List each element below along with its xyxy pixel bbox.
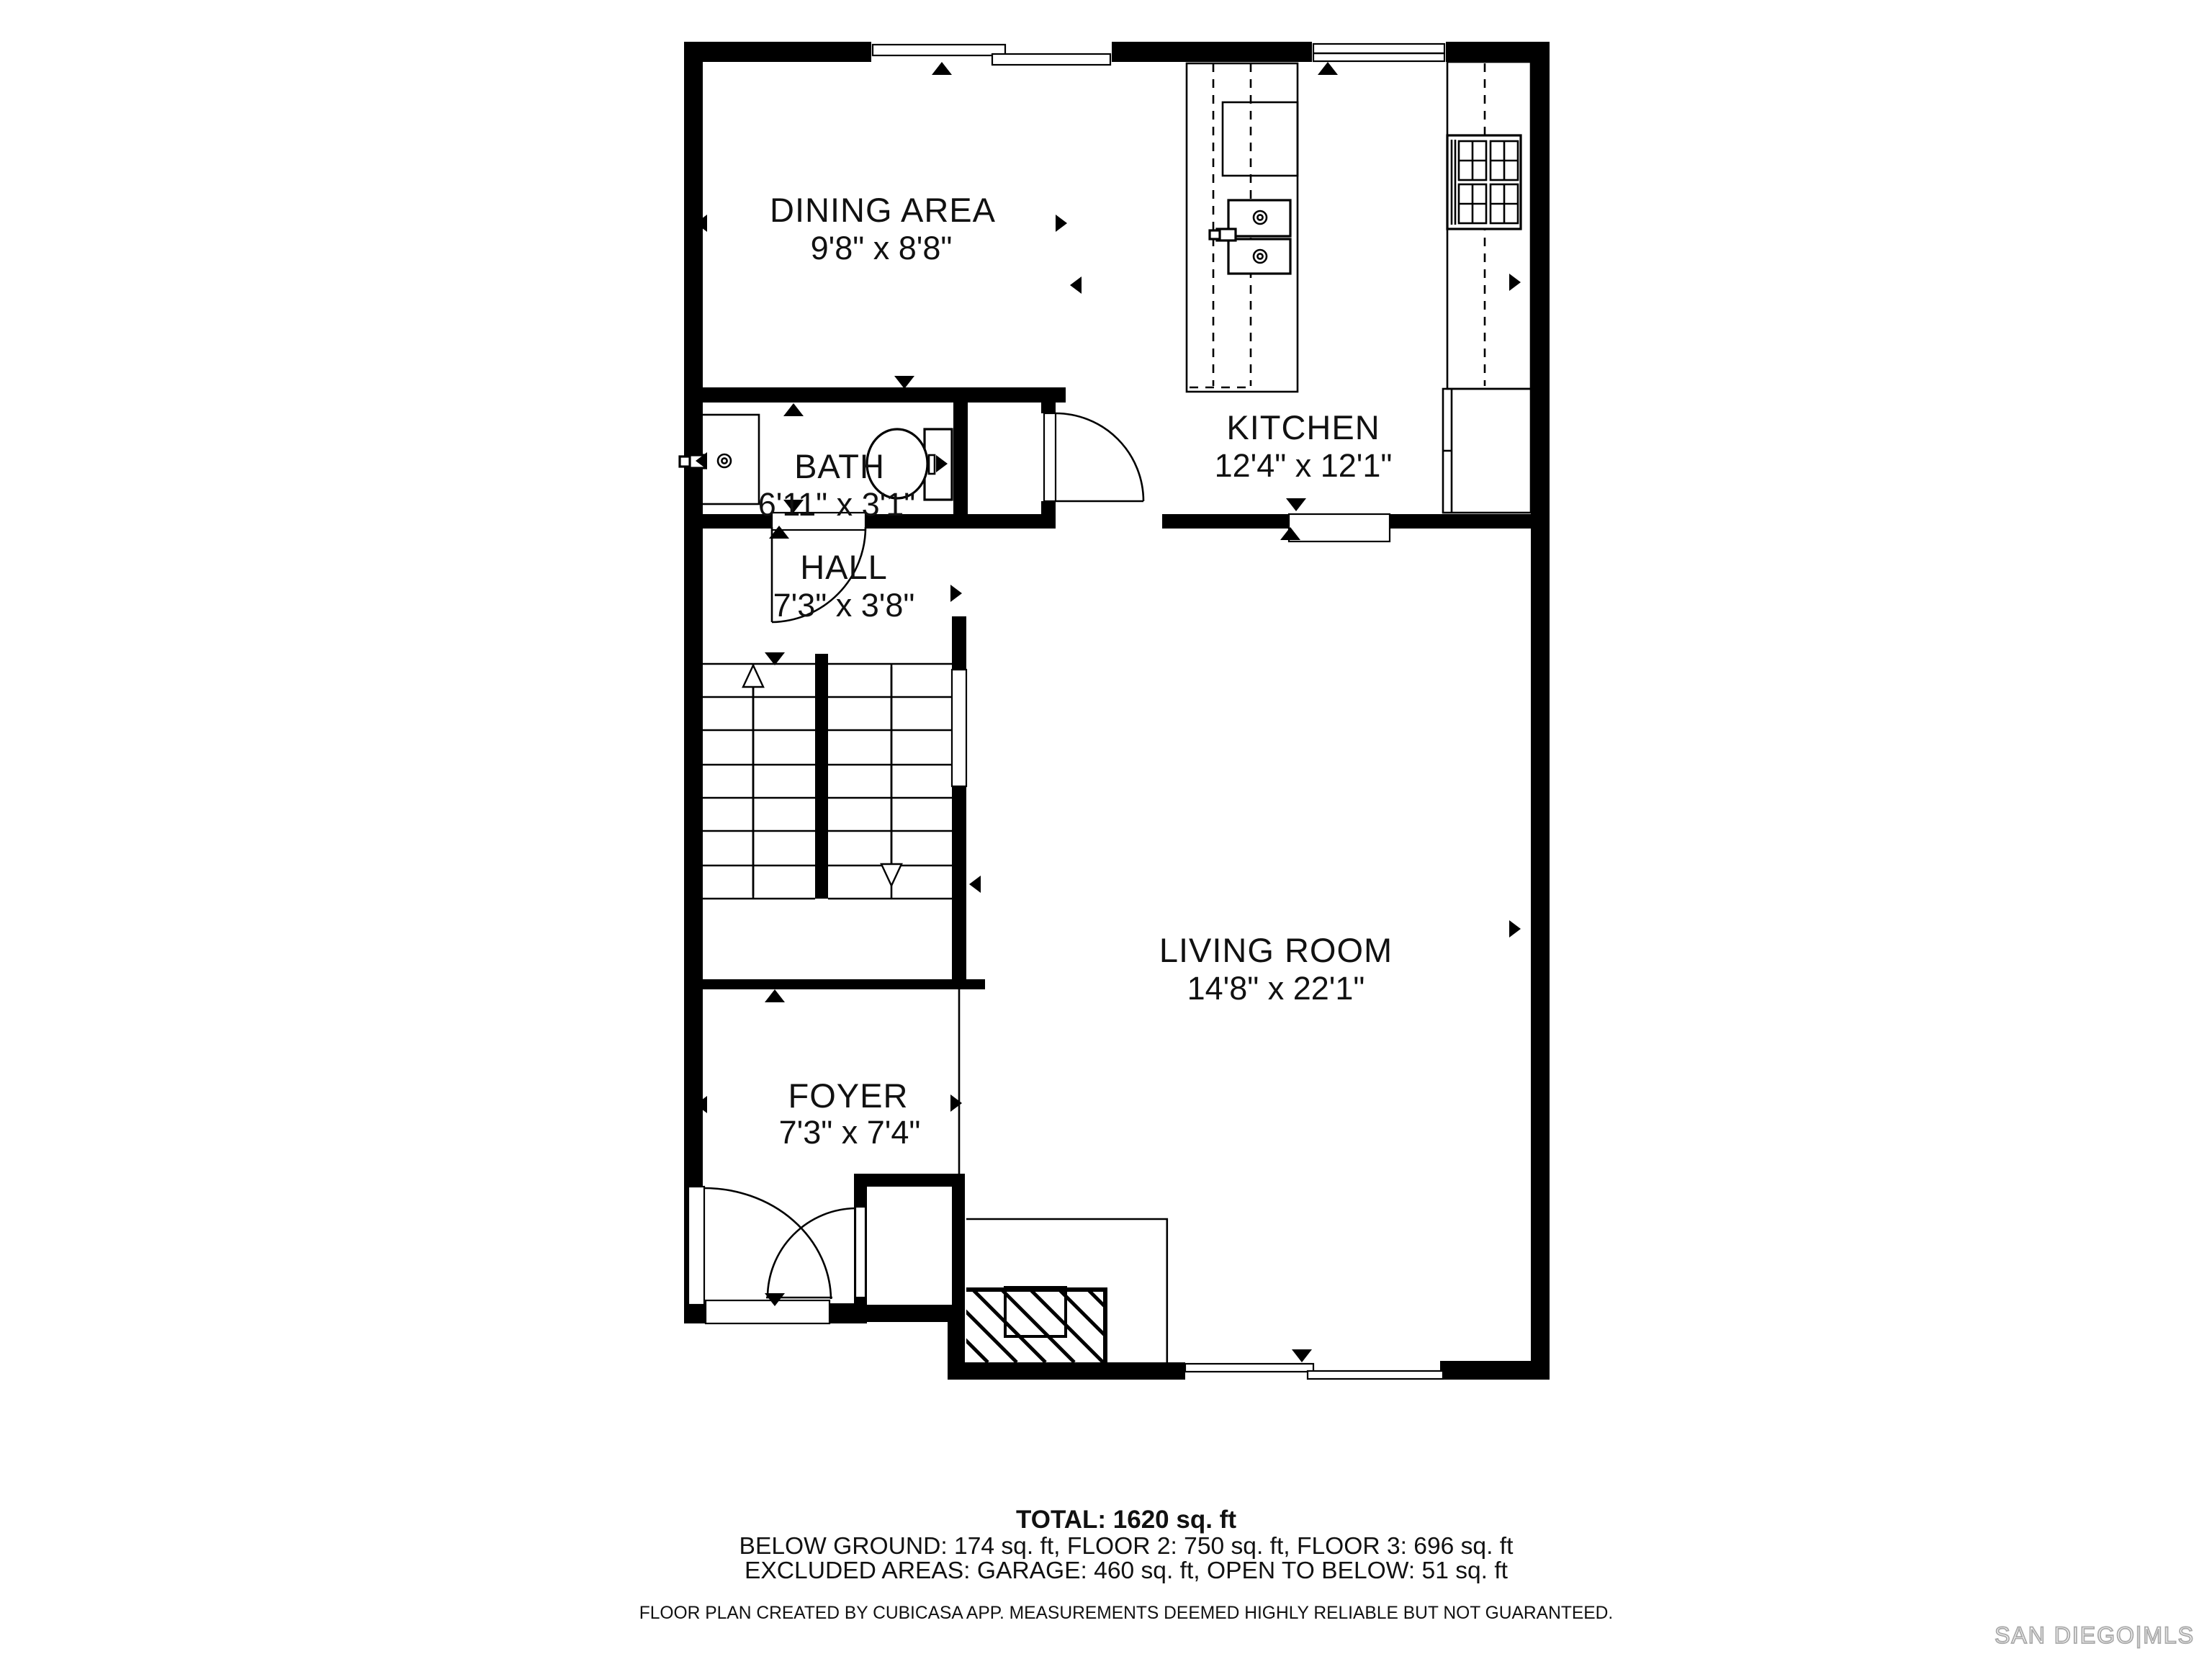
dining-area-label: DINING AREA: [770, 191, 996, 229]
extent-arrow-right-icon: [950, 585, 962, 602]
extent-arrow-up-icon: [783, 403, 804, 416]
extent-arrow-up-icon: [1318, 62, 1338, 75]
summary-block: TOTAL: 1620 sq. ft BELOW GROUND: 174 sq.…: [639, 1506, 1614, 1623]
stove-icon: [1447, 135, 1521, 229]
entry-door-icon: [688, 1187, 831, 1305]
floor-areas-text: BELOW GROUND: 174 sq. ft, FLOOR 2: 750 s…: [739, 1533, 1514, 1560]
foyer-label: FOYER: [788, 1076, 909, 1115]
floor-plan: DINING AREA 9'8" x 8'8" KITCHEN 12'4" x …: [0, 0, 2212, 1659]
extent-arrow-down-icon: [894, 376, 914, 389]
total-area-text: TOTAL: 1620 sq. ft: [1016, 1506, 1236, 1534]
window-top-left-icon: [873, 45, 1110, 65]
refrigerator-icon: [1443, 389, 1531, 513]
disclaimer-text: FLOOR PLAN CREATED BY CUBICASA APP. MEAS…: [639, 1604, 1614, 1623]
kitchen-sink-icon: [1210, 200, 1290, 274]
foyer-dims: 7'3" x 7'4": [779, 1114, 921, 1151]
entry-threshold: [706, 1300, 829, 1323]
pantry-door-icon: [1044, 413, 1143, 501]
hall-dims: 7'3" x 3'8": [773, 587, 915, 624]
stairs-down-arrow-icon: [881, 667, 902, 886]
window-bottom-icon: [1185, 1364, 1443, 1379]
staircase: [693, 664, 966, 979]
interior-walls: [684, 387, 1531, 1380]
extent-arrow-left-icon: [969, 876, 981, 893]
extent-arrow-right-icon: [1056, 215, 1067, 232]
extent-arrow-down-icon: [1286, 498, 1306, 511]
open-to-below-hatch-icon: [884, 1287, 1161, 1362]
dining-area-dims: 9'8" x 8'8": [811, 230, 953, 266]
bath-label: BATH: [794, 447, 885, 485]
kitchen-label: KITCHEN: [1226, 408, 1380, 446]
stair-railing: [952, 670, 966, 786]
extent-arrow-down-icon: [1292, 1349, 1312, 1362]
foyer-closet-door-icon: [766, 1207, 866, 1298]
extent-arrow-right-icon: [1509, 274, 1521, 291]
kitchen-opening: [1289, 514, 1390, 541]
extent-arrow-up-icon: [932, 62, 952, 75]
window-top-right-icon: [1313, 44, 1444, 61]
doors: [688, 413, 1390, 1323]
dishwasher-icon: [1223, 102, 1298, 176]
floor-plan-page: DINING AREA 9'8" x 8'8" KITCHEN 12'4" x …: [0, 0, 2212, 1659]
hall-label: HALL: [800, 548, 888, 586]
living-room-dims: 14'8" x 22'1": [1187, 970, 1365, 1007]
kitchen-dims: 12'4" x 12'1": [1215, 447, 1393, 484]
stairs-up-arrow-icon: [743, 665, 763, 896]
extent-arrow-right-icon: [1509, 920, 1521, 938]
extent-arrow-up-icon: [765, 989, 785, 1002]
mls-watermark: SAN DIEGO|MLS: [1995, 1622, 2195, 1648]
bath-dims: 6'11" x 3'1": [758, 486, 915, 523]
garage-below-outline: [884, 1218, 1168, 1362]
extent-arrow-left-icon: [1070, 276, 1082, 294]
extent-arrow-right-icon: [950, 1094, 962, 1112]
excluded-areas-text: EXCLUDED AREAS: GARAGE: 460 sq. ft, OPEN…: [745, 1557, 1509, 1584]
living-room-label: LIVING ROOM: [1159, 931, 1393, 969]
